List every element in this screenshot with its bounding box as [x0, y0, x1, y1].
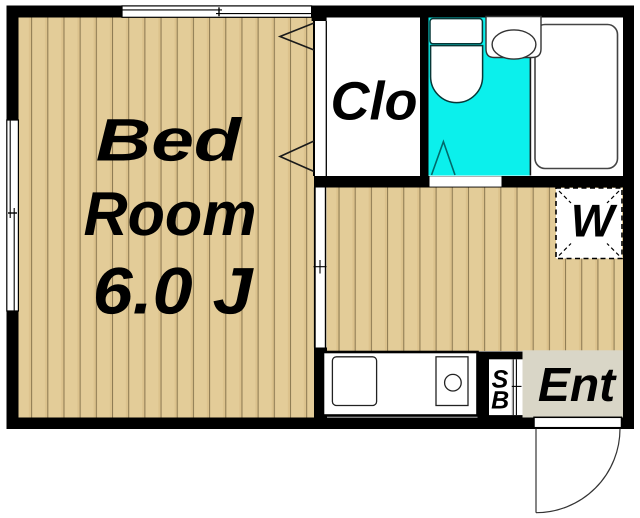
svg-text:6.0 J: 6.0 J	[93, 254, 254, 328]
svg-text:Bed: Bed	[96, 107, 243, 174]
svg-text:B: B	[491, 386, 509, 414]
svg-text:Room: Room	[84, 180, 257, 249]
svg-text:Ent: Ent	[538, 359, 617, 412]
svg-text:Clo: Clo	[331, 71, 418, 131]
svg-text:W: W	[571, 195, 618, 247]
